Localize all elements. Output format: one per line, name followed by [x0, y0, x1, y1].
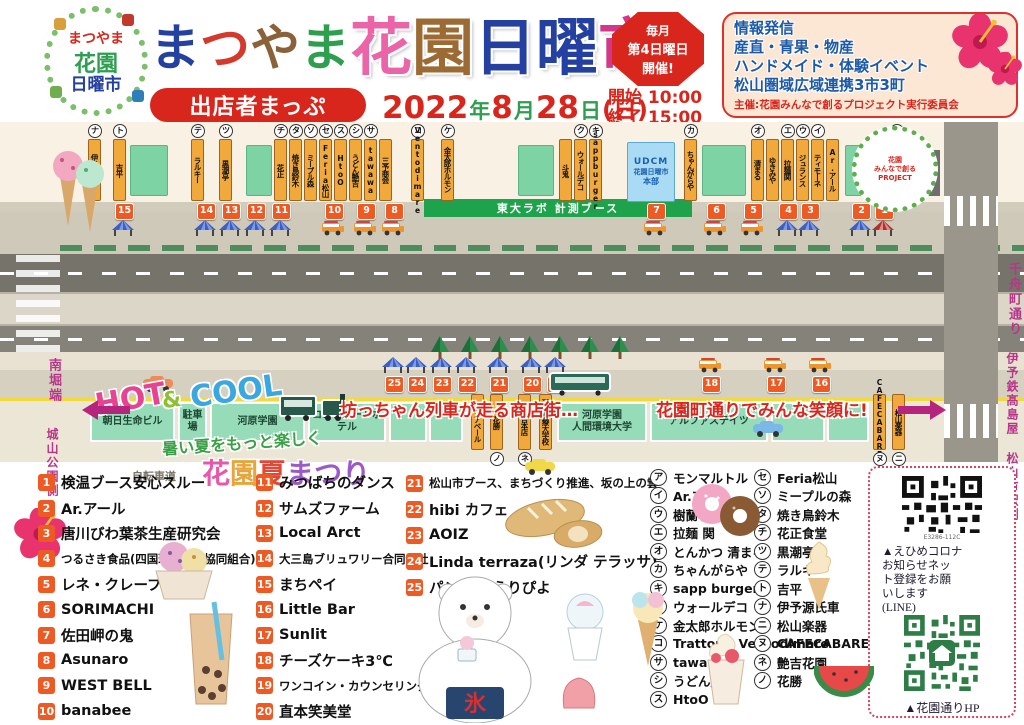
qr-caption-text: (LINE) — [882, 601, 1002, 615]
title-char: 花 — [350, 17, 412, 79]
vendor-letter: ソ — [304, 124, 318, 138]
directory-label: 花勝 — [777, 671, 802, 690]
logo-line1: まつやま — [44, 28, 148, 48]
stall-number: 22 — [458, 376, 477, 393]
right-arrow-icon — [898, 400, 946, 420]
directory-label: WEST BELL — [61, 678, 152, 694]
title-char: ま — [300, 23, 350, 73]
vendor-tab-top: 斗鬼 — [559, 139, 572, 201]
directory-row: 15まちペイ — [256, 572, 429, 597]
event-map-poster: まつやま 花園 日曜市 まつやま花園日曜市 出店者まっぷ 2022年8月28日(… — [0, 0, 1024, 725]
directory-number: 2 — [38, 500, 55, 517]
directory-label: Local Arct — [279, 525, 361, 541]
qr-serial: E3286-112C — [924, 534, 961, 541]
car-icon — [752, 420, 786, 438]
stall-number: 20 — [523, 376, 542, 393]
vendor-letter: ツ — [219, 124, 233, 138]
blue-tent-icon — [268, 219, 292, 237]
icecream-cup-illustration — [148, 535, 220, 601]
stall-number: 14 — [197, 203, 216, 220]
bread-illustration — [500, 492, 605, 552]
directory-label: banabee — [61, 703, 131, 719]
title-char: 曜 — [536, 17, 598, 79]
directory-letter: ア — [650, 469, 667, 486]
directory-number: 11 — [256, 474, 273, 491]
directory-letter: テ — [754, 561, 771, 578]
directory-number: 12 — [256, 500, 273, 517]
vendor-tab-top: 拉麺関 — [781, 139, 794, 201]
softserve-illustration — [796, 540, 842, 614]
stall-number: 23 — [433, 376, 452, 393]
directory-number: 21 — [406, 475, 423, 492]
line-qr-code — [902, 476, 982, 533]
directory-row: 1検温ブース安心スルー — [38, 470, 256, 495]
logo-decor-dot — [122, 14, 134, 26]
directory-label: SORIMACHI — [61, 602, 154, 618]
vendor-tab-top: ゆきみや — [766, 139, 779, 201]
hq-box: UDCM 花園日曜市 本部 — [627, 142, 675, 202]
kitchen-truck-icon — [643, 219, 667, 237]
directory-row: 16Little Bar — [256, 597, 429, 622]
stall-number: 17 — [767, 376, 786, 393]
shaved-ice-illustration — [556, 588, 614, 668]
wreath-line: 花園 — [888, 156, 902, 165]
directory-number: 7 — [38, 627, 55, 644]
vendor-tab-top: うどん艶吉 — [349, 139, 362, 201]
directory-number: 5 — [38, 576, 55, 593]
blue-tent-icon — [218, 219, 242, 237]
stall-number: 24 — [408, 376, 427, 393]
vendor-letter: ノ — [490, 452, 504, 466]
qr-caption-text: お知らせネッ — [882, 559, 1002, 573]
directory-letter: オ — [650, 543, 667, 560]
directory-row: 12サムズファーム — [256, 495, 429, 520]
right-street-label: 千舟町通り — [1004, 262, 1023, 337]
vendor-tab-top: ティモーネ — [811, 139, 824, 201]
vendor-tab-top: 金太郎ホルモン — [441, 139, 454, 201]
directory-number: 18 — [256, 652, 273, 669]
bubble-tea-illustration — [182, 600, 240, 710]
vendor-letter: エ — [781, 124, 795, 138]
directory-label: Asunaro — [61, 652, 128, 668]
directory-row: ヌCAFECABARET — [754, 635, 878, 654]
vendor-letter: ケ — [441, 124, 455, 138]
page-title: まつやま花園日曜市 — [150, 6, 660, 90]
wreath-line: みんなで創る — [874, 165, 916, 174]
kitchen-truck-icon — [740, 219, 764, 237]
vendor-letter: セ — [319, 124, 333, 138]
red-tent-icon — [871, 219, 895, 237]
directory-label: まちペイ — [279, 574, 337, 595]
vendor-letter: ニ — [892, 452, 906, 466]
vendor-tab-top: ジュランス — [796, 139, 809, 201]
qr-caption-text: いします — [882, 587, 1002, 601]
directory-row: 19ワンコイン・カウンセリング — [256, 673, 429, 698]
stall-number: 16 — [812, 376, 831, 393]
stall-number: 13 — [222, 203, 241, 220]
directory-label: チーズケーキ3℃ — [279, 650, 393, 671]
stall-number: 11 — [272, 203, 291, 220]
info-line: 松山圏域広域連携3市3町 — [734, 76, 1008, 95]
vendor-tab-top: Ar.アール — [826, 139, 839, 201]
directory-row: タ焼き鳥鈴木 — [754, 505, 878, 524]
amp-text: & — [160, 387, 182, 414]
vendor-letter: ト — [113, 124, 127, 138]
date-part: 年 — [469, 95, 490, 125]
directory-label: AOIZ — [429, 527, 468, 543]
vendor-green-block — [246, 145, 272, 196]
directory-number: 19 — [256, 677, 273, 694]
date-part: 8 — [491, 90, 513, 126]
directory-number: 9 — [38, 677, 55, 694]
directory-letter: ツ — [754, 543, 771, 560]
stall-number: 10 — [325, 203, 344, 220]
directory-row: 5レネ・クレープ — [38, 572, 256, 597]
directory-label: 焼き鳥鈴木 — [777, 505, 840, 524]
directory-number: 20 — [256, 703, 273, 720]
directory-letter: シ — [650, 672, 667, 689]
directory-row: 18チーズケーキ3℃ — [256, 648, 429, 673]
directory-label: サムズファーム — [279, 498, 380, 519]
directory-row: 14大三島ブリュワリー合同会社 — [256, 546, 429, 571]
stall-number: 25 — [385, 376, 404, 393]
vendor-tab-top: Ventodimare — [411, 139, 424, 201]
title-char: つ — [200, 23, 250, 73]
directory-label: 検温ブース安心スルー — [61, 472, 205, 493]
date-part: 2022 — [382, 90, 468, 126]
right-store-label: 伊予鉄髙島屋 — [1004, 352, 1021, 436]
directory-label: Little Bar — [279, 602, 355, 618]
directory-number: 15 — [256, 576, 273, 593]
vendor-tab-top: 三予商会 — [379, 139, 392, 201]
blue-tent-icon — [243, 219, 267, 237]
directory-letter: ト — [754, 580, 771, 597]
stall-number: 15 — [115, 203, 134, 220]
kitchen-truck-icon — [763, 356, 787, 374]
stall-number: 9 — [357, 203, 376, 220]
title-char: や — [250, 23, 300, 73]
hq-line: 本部 — [628, 177, 674, 187]
title-char: ま — [150, 23, 200, 73]
directory-label: 松山楽器 — [777, 616, 827, 635]
vendor-tab-top: Feria松山 — [319, 139, 332, 201]
stall-number: 12 — [247, 203, 266, 220]
vendor-letter: カ — [684, 124, 698, 138]
directory-letter: エ — [650, 524, 667, 541]
directory-row: 2Ar.アール — [38, 495, 256, 520]
directory-label: hibi カフェ — [429, 499, 508, 520]
left-arrow-icon — [82, 400, 130, 420]
directory-number: 6 — [38, 601, 55, 618]
vendor-letter: シ — [349, 124, 363, 138]
vendor-tab-top: 吉平 — [113, 139, 126, 201]
directory-number: 16 — [256, 601, 273, 618]
vendor-tab-top: ちゃんがらや — [684, 139, 697, 201]
stall-number: 8 — [385, 203, 404, 220]
vendor-tab-top: HtoO — [334, 139, 347, 201]
stall-number: 6 — [707, 203, 726, 220]
directory-letter: カ — [650, 561, 667, 578]
qr-caption-line: ▲えひめコロナお知らせネット登録をお願いします(LINE) — [882, 545, 1002, 615]
stall-number: 18 — [702, 376, 721, 393]
directory-number: 4 — [38, 550, 55, 567]
directory-row: 17Sunlit — [256, 622, 429, 647]
directory-number: 23 — [406, 527, 423, 544]
directory-label: sapp burger — [673, 581, 759, 596]
event-logo: まつやま 花園 日曜市 — [44, 6, 148, 116]
blue-tent-icon — [193, 219, 217, 237]
project-wreath-logo: 花園 みんなで創る PROJECT — [852, 126, 938, 212]
donuts-illustration — [686, 482, 764, 538]
blue-tent-icon — [848, 219, 872, 237]
directory-label: 佐田岬の鬼 — [61, 625, 134, 646]
directory-label: 直本笑美堂 — [279, 701, 352, 722]
badge-line: 開催! — [642, 58, 674, 77]
qr-caption-text: ▲えひめコロナ — [882, 545, 1002, 559]
vendor-tab-top: ミープル森 — [304, 139, 317, 201]
directory-col-2: 11みつばちのダンス12サムズファーム13Local Arct14大三島ブリュワ… — [256, 470, 429, 724]
directory-number: 17 — [256, 627, 273, 644]
candy-illustration — [556, 672, 602, 716]
vendor-tab-top: 花正 — [274, 139, 287, 201]
directory-letter: イ — [650, 487, 667, 504]
qr-caption-text: ト登録をお願 — [882, 573, 1002, 587]
directory-number: 22 — [406, 501, 423, 518]
directory-label: CAFECABARET — [777, 636, 878, 651]
vendor-green-block — [702, 145, 746, 196]
directory-letter: ウ — [650, 506, 667, 523]
vendor-letter: サ — [364, 124, 378, 138]
vendor-letter: ク — [574, 124, 588, 138]
parfait-illustration — [698, 630, 754, 710]
directory-label: Sunlit — [279, 627, 327, 643]
hq-line: UDCM — [628, 157, 674, 167]
directory-label: みつばちのダンス — [279, 472, 395, 493]
qr-panel: E3286-112C ▲えひめコロナお知らせネット登録をお願いします(LINE)… — [868, 466, 1016, 718]
vendor-letter: オ — [751, 124, 765, 138]
hp-qr-code — [904, 615, 980, 695]
stall-number: 2 — [852, 203, 871, 220]
stall-number: 3 — [801, 203, 820, 220]
date-part: 月 — [514, 95, 535, 125]
vendor-tab-top: 焼き鳥鈴木 — [289, 139, 302, 201]
blue-tent-icon — [404, 356, 428, 374]
blue-tent-icon — [797, 219, 821, 237]
vendor-tab-top: 黒潮亭 — [219, 139, 232, 201]
watermelon-illustration — [814, 652, 874, 700]
vendor-letter: ヌ — [873, 452, 887, 466]
directory-label: 松山市ブース、まちづくり推進、坂の上の雲 — [429, 475, 658, 491]
directory-letter: ナ — [754, 598, 771, 615]
directory-letter: ヌ — [754, 635, 771, 652]
hibiscus-icon — [988, 52, 1022, 86]
directory-row: セFeria松山 — [754, 468, 878, 487]
kitchen-truck-icon — [321, 219, 345, 237]
tram-icon — [548, 370, 612, 396]
vendor-tab-top: ウォールデコ — [574, 139, 587, 201]
kitchen-truck-icon — [698, 356, 722, 374]
directory-letter: ノ — [754, 672, 771, 689]
info-footer: 主催:花園みんなで創るプロジェクト実行委員会 — [734, 97, 1008, 112]
qr-caption-hp: ▲花園通りHP — [904, 699, 979, 716]
directory-label: ミープルの森 — [777, 486, 851, 505]
directory-row: 20直本笑美堂 — [256, 699, 429, 724]
vendor-tab-top: sappburger — [589, 139, 602, 201]
directory-row: 11みつばちのダンス — [256, 470, 429, 495]
vendor-letter: ス — [334, 124, 348, 138]
smile-text: 花園町通りでみんな笑顔に! — [656, 396, 868, 421]
directory-label: Feria松山 — [777, 468, 837, 487]
date-part: 日 — [580, 95, 601, 125]
vendor-green-block — [130, 145, 168, 196]
vendor-letter: タ — [289, 124, 303, 138]
directory-number: 8 — [38, 652, 55, 669]
directory-label: ワンコイン・カウンセリング — [279, 678, 429, 694]
vendor-tab-top: 清まる — [751, 139, 764, 201]
logo-line3: 日曜市 — [44, 70, 148, 95]
badge-line: 毎月 — [646, 22, 670, 39]
directory-number: 1 — [38, 474, 55, 491]
directory-row: 4つるさき食品(四国珍味商工協同組合) — [38, 546, 256, 571]
vendor-letter: テ — [191, 124, 205, 138]
blue-tent-icon — [775, 219, 799, 237]
polar-bear-illustration: 氷 — [408, 565, 543, 723]
directory-letter: ネ — [754, 654, 771, 671]
directory-label: ウォールデコ — [673, 597, 748, 616]
subtitle-badge: 出店者まっぷ — [150, 88, 366, 122]
hq-line: 花園日曜市 — [628, 167, 674, 177]
stall-number: 4 — [779, 203, 798, 220]
vendor-green-block — [518, 145, 554, 196]
stall-number: 5 — [744, 203, 763, 220]
directory-row: ソミープルの森 — [754, 487, 878, 506]
stall-number: 7 — [647, 203, 666, 220]
vendor-tab-bottom: CAFECABARET — [873, 394, 886, 450]
monthly-badge: 毎月 第4日曜日 開催! — [612, 12, 704, 86]
directory-label: レネ・クレープ — [61, 574, 162, 595]
vendor-letter: イ — [811, 124, 825, 138]
left-street-label: 南堀端 — [44, 358, 63, 403]
stall-number: 21 — [490, 376, 509, 393]
directory-row: 13Local Arct — [256, 521, 429, 546]
tree-row-icon — [430, 336, 650, 362]
wreath-line: PROJECT — [878, 174, 912, 183]
directory-label: Ar.アール — [61, 498, 125, 519]
title-char: 園 — [412, 17, 474, 79]
kitchen-truck-icon — [353, 219, 377, 237]
directory-letter: ス — [650, 691, 667, 708]
directory-number: 3 — [38, 525, 55, 542]
directory-letter: ニ — [754, 617, 771, 634]
directory-label: とんかつ 清まる — [673, 542, 765, 561]
date-part: 28 — [536, 90, 579, 126]
directory-row: 3唐川びわ葉茶生産研究会 — [38, 521, 256, 546]
directory-label: ちゃんがらや — [673, 560, 748, 579]
kitchen-truck-icon — [808, 356, 832, 374]
vendor-letter: ウ — [796, 124, 810, 138]
icecream-cones-illustration — [42, 126, 112, 236]
directory-number: 14 — [256, 550, 273, 567]
vendor-tab-top: tawawa — [364, 139, 377, 201]
vendor-tab-top: ラルキー — [191, 139, 204, 201]
kitchen-truck-icon — [703, 219, 727, 237]
vendor-letter: チ — [274, 124, 288, 138]
train-street-text: 坊っちゃん列車が走る商店街… — [340, 396, 578, 421]
directory-number: 10 — [38, 703, 55, 720]
kitchen-truck-icon — [381, 219, 405, 237]
badge-line: 第4日曜日 — [627, 39, 688, 58]
blue-tent-icon — [111, 219, 135, 237]
title-char: 日 — [474, 17, 536, 79]
svg-text:氷: 氷 — [464, 692, 487, 717]
icecream-cone-illustration — [622, 578, 674, 670]
directory-number: 13 — [256, 525, 273, 542]
directory-row: ニ松山楽器 — [754, 616, 878, 635]
blue-tent-icon — [381, 356, 405, 374]
